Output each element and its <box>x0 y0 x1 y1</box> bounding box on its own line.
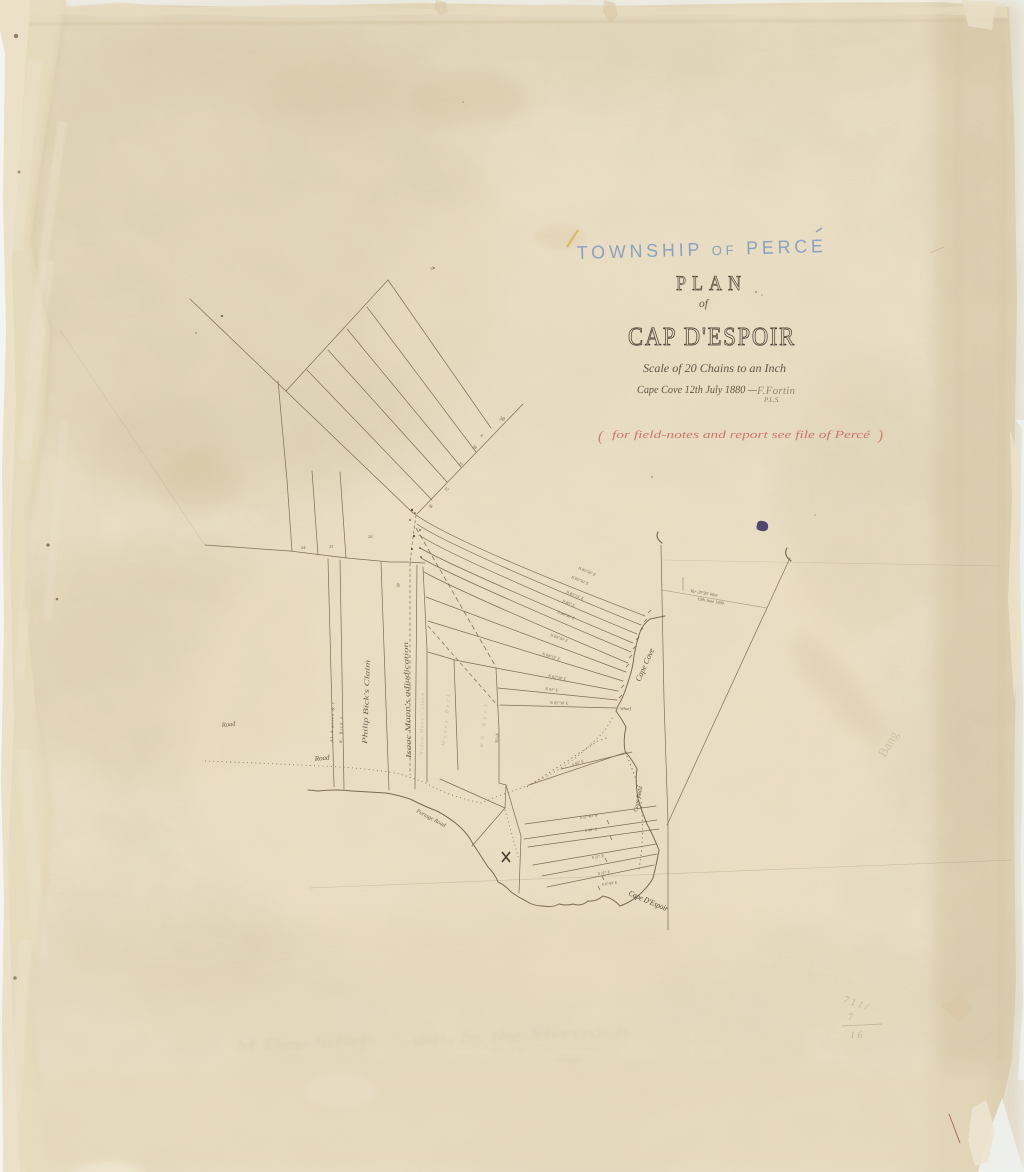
svg-text:Cape Cove 12th July 1880 —: Cape Cove 12th July 1880 — <box>637 384 757 396</box>
svg-text:P.L.S.: P.L.S. <box>763 396 780 404</box>
svg-text:Widow Mann's claim: Widow Mann's claim <box>419 693 426 755</box>
svg-text:CAP D'ESPOIR: CAP D'ESPOIR <box>628 322 796 351</box>
svg-text:Road: Road <box>313 753 330 763</box>
svg-text:Scale of 20 Chains to an Inch: Scale of 20 Chains to an Inch <box>643 361 786 375</box>
svg-text:1 6: 1 6 <box>850 1030 863 1041</box>
svg-text:PLAN: PLAN <box>676 271 747 295</box>
svg-text:Wharf: Wharf <box>620 706 632 711</box>
svg-text:N 85°30' E: N 85°30' E <box>549 700 569 706</box>
svg-text:for field-notes and report see: for field-notes and report see file of P… <box>612 429 872 441</box>
svg-text:38: 38 <box>498 416 506 423</box>
svg-text:): ) <box>877 428 883 444</box>
svg-text:Ogm: Ogm <box>560 1052 584 1066</box>
svg-text:50 ch: 50 ch <box>494 732 500 743</box>
